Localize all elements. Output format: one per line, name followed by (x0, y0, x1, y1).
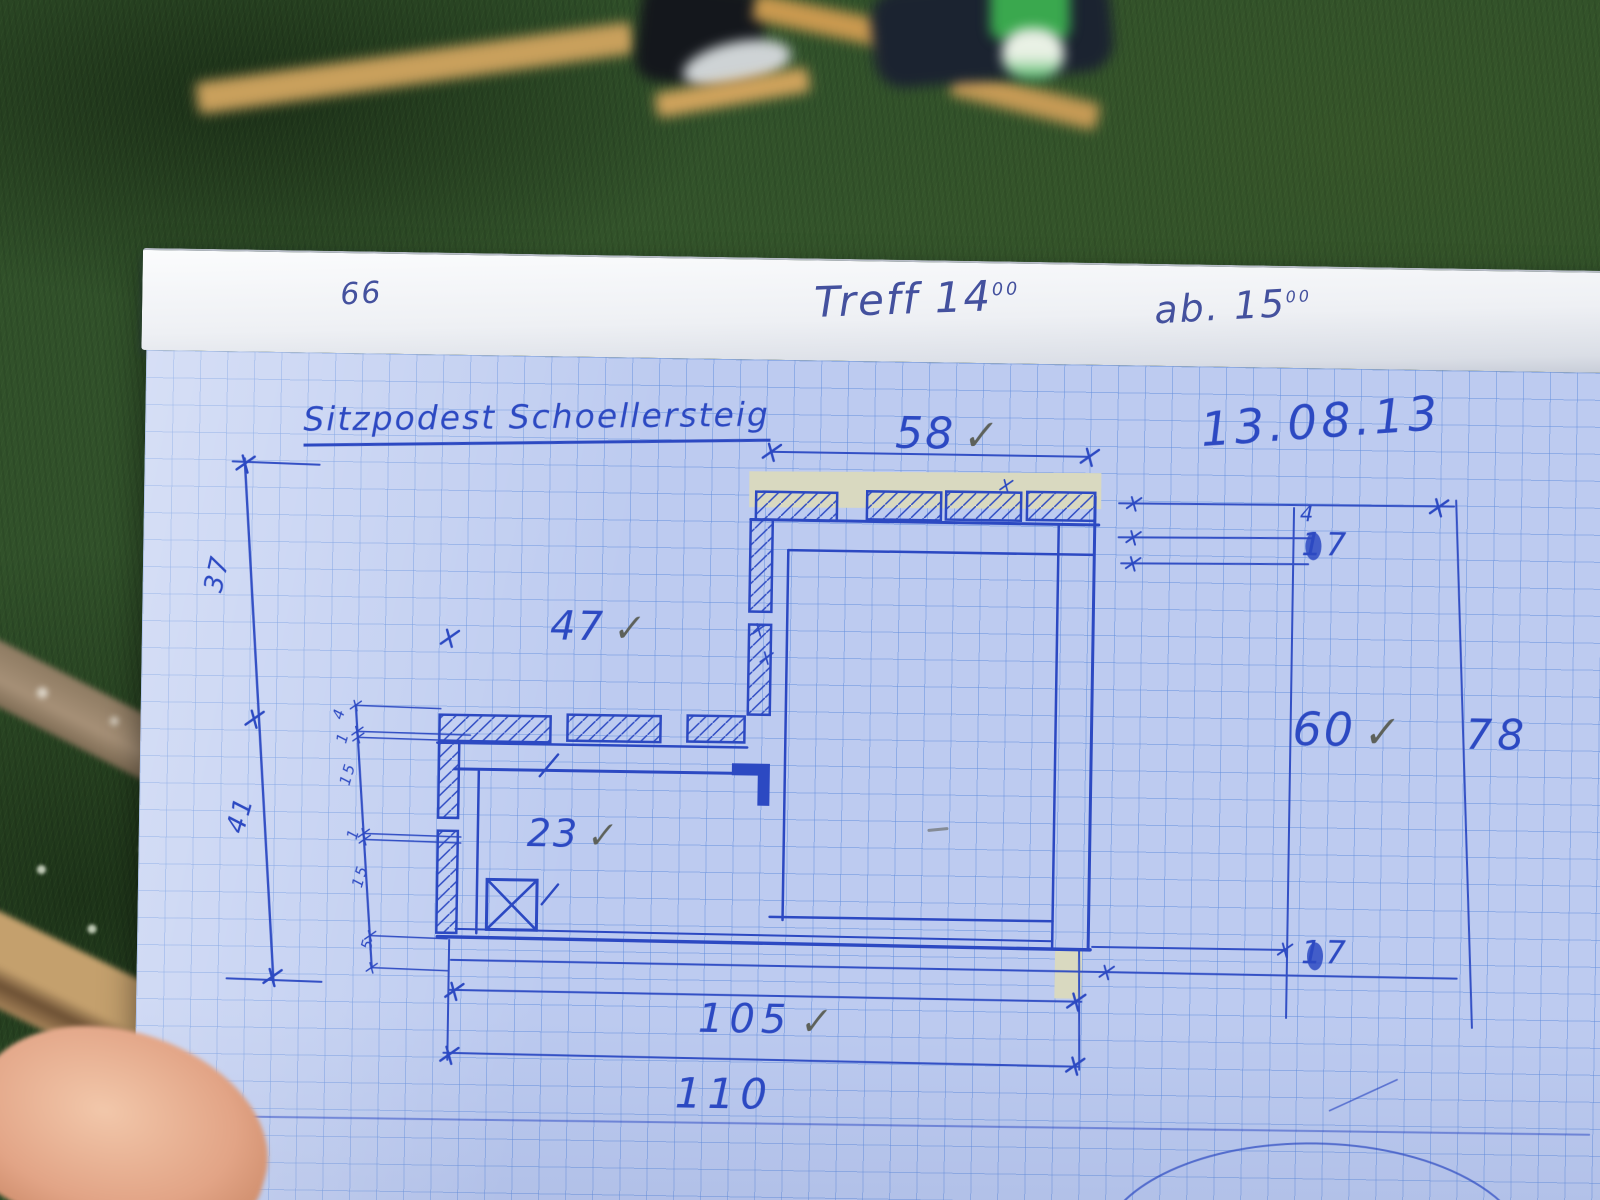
check-mark-icon: ✓ (799, 1002, 840, 1043)
second-time-note: ab. 1500 (1153, 283, 1313, 330)
dimension-lines (216, 443, 1600, 1200)
dim-right-top-offset: 17 (1301, 528, 1350, 561)
dim-left-upper-height: 37 (201, 553, 235, 595)
dim-top-width-value: 58 (895, 408, 956, 460)
dim-total-height: 78 (1465, 714, 1529, 757)
meeting-time-text: Treff 14 (813, 271, 993, 326)
sketch-title: Sitzpodest Schoellersteig (303, 398, 770, 447)
notepad: 66 Treff 1400 ab. 1500 (132, 248, 1600, 1200)
big-box (744, 488, 1099, 950)
check-mark-icon: ✓ (962, 413, 1003, 457)
page-number: 66 (340, 278, 384, 310)
dim-bottom-inner: 105✓ (698, 999, 839, 1041)
meeting-time-note: Treff 1400 (814, 274, 1022, 324)
check-mark-icon: ✓ (612, 609, 649, 649)
crossed-post-symbol (486, 879, 537, 930)
dim-right-box-height-value: 60 (1292, 702, 1355, 757)
dim-right-box-height: 60✓ (1292, 706, 1402, 754)
dimension-ticks (227, 435, 1449, 1080)
dim-bottom-inner-value: 105 (698, 996, 793, 1043)
check-mark-icon: ✓ (586, 818, 621, 856)
photo-background: 66 Treff 1400 ab. 1500 (0, 0, 1600, 1200)
second-time-text: ab. 15 (1153, 281, 1287, 332)
check-mark-icon: ✓ (1362, 709, 1405, 755)
dim-upper-shelf: 47✓ (550, 606, 647, 648)
dim-bottom-outer: 110 (674, 1072, 773, 1116)
dim-top-width: 58✓ (895, 412, 1001, 458)
dim-right-top-small: 4 (1300, 504, 1316, 525)
second-time-superscript: 00 (1285, 286, 1312, 306)
green-white-shoe (1002, 28, 1064, 80)
graph-paper: Sitzpodest Schoellersteig 13.08.13 58✓ 4… (132, 350, 1600, 1200)
meeting-time-superscript: 00 (992, 279, 1021, 300)
dim-lower-shelf: 23✓ (527, 814, 620, 854)
dim-lower-shelf-value: 23 (527, 811, 580, 856)
dim-right-bottom-offset: 17 (1301, 936, 1350, 969)
dim-upper-shelf-value: 47 (550, 603, 606, 650)
